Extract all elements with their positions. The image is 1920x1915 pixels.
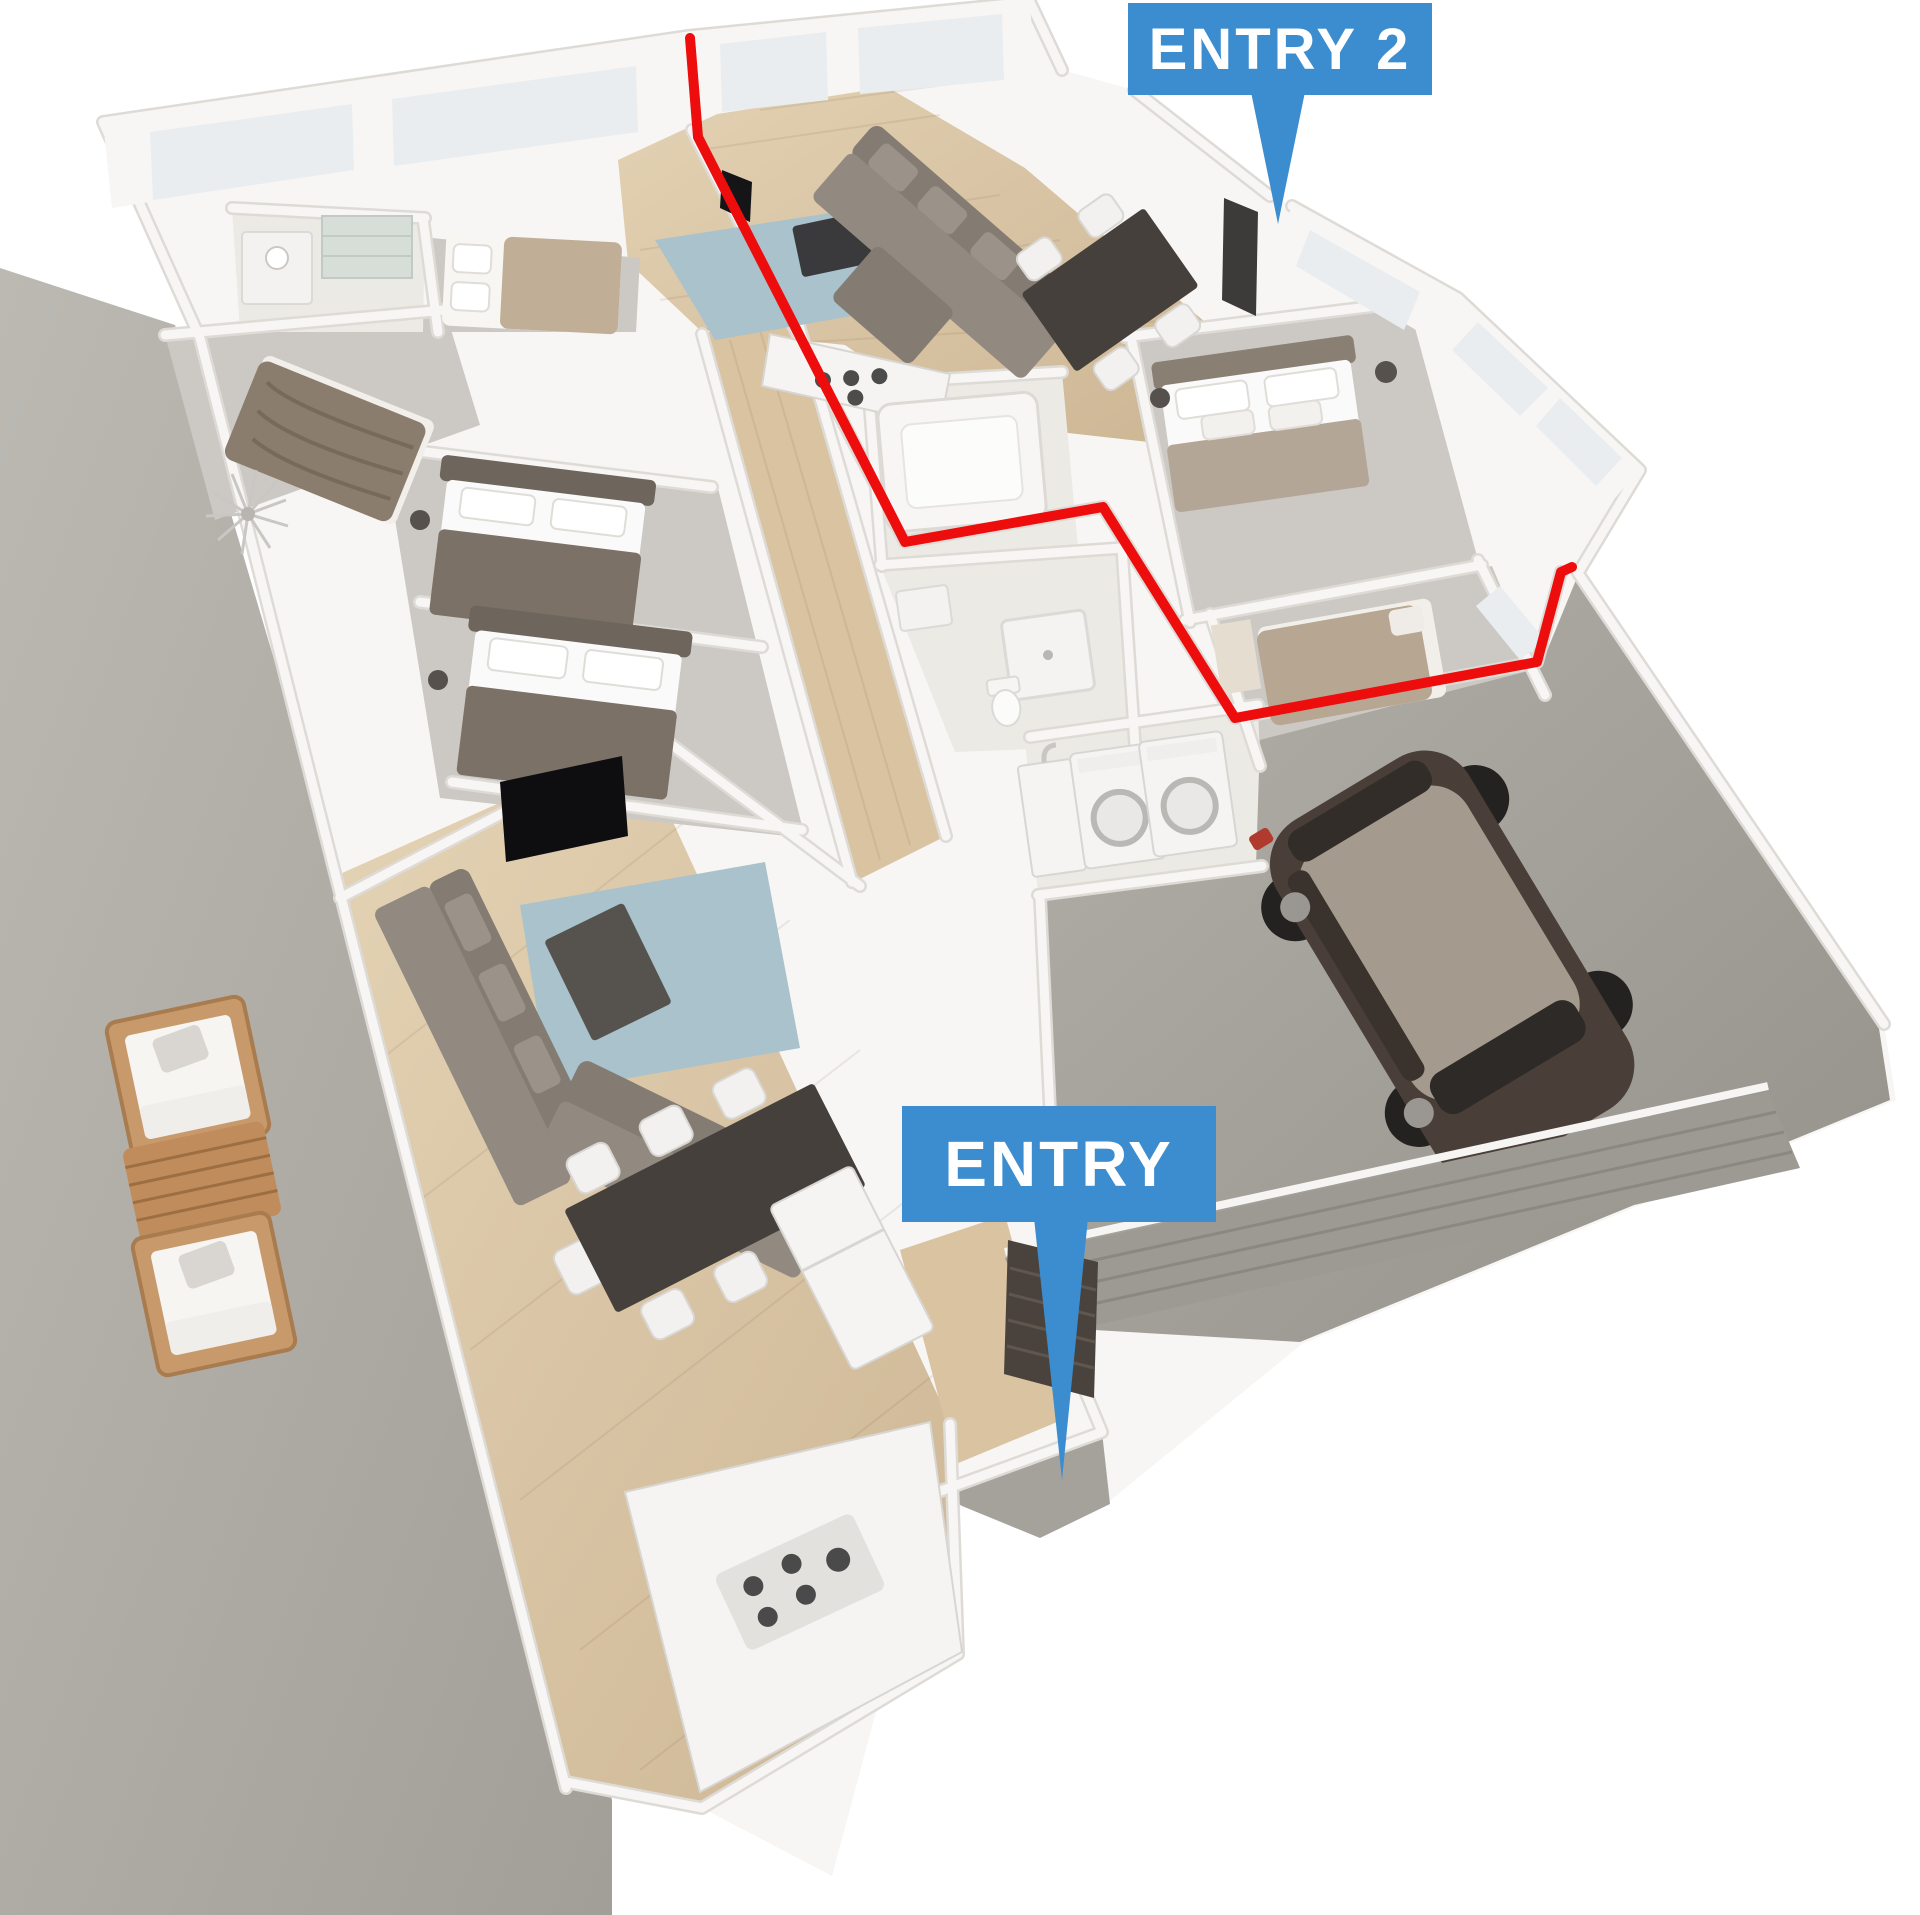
window-top-1	[720, 32, 828, 112]
entry2-label: ENTRY 2	[1149, 17, 1412, 82]
bath-vanity	[895, 585, 952, 632]
floor-plan-render: ENTRY 2 ENTRY	[0, 0, 1920, 1915]
window-top-2	[858, 14, 1004, 94]
bedside-stool-2	[428, 670, 448, 690]
dryer	[1138, 731, 1237, 858]
entry-label: ENTRY	[944, 1128, 1174, 1200]
floor-plan-page: ENTRY 2 ENTRY	[0, 0, 1920, 1915]
bed-top	[442, 233, 623, 334]
bedside-stool	[410, 510, 430, 530]
entry2-door	[1222, 198, 1258, 316]
master-stool	[1375, 361, 1397, 383]
bathtub	[877, 391, 1048, 532]
master-bed	[1151, 335, 1374, 514]
master-stool-2	[1150, 388, 1170, 408]
bed-left-1	[423, 454, 657, 639]
outdoor-chair-2	[131, 1211, 297, 1377]
